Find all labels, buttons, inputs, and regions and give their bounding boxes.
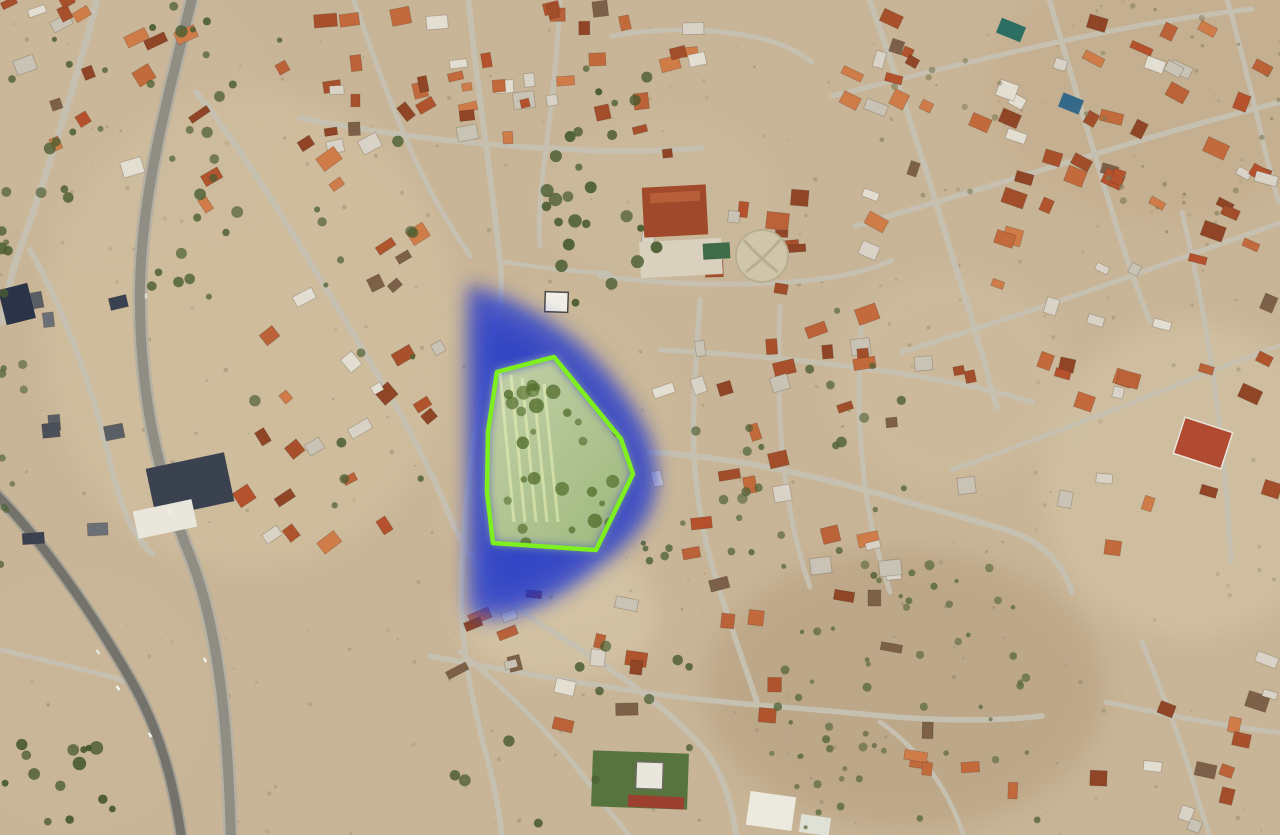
tree	[815, 809, 821, 815]
building	[774, 283, 788, 295]
tree	[754, 484, 762, 492]
tree	[503, 735, 514, 746]
tree	[804, 825, 808, 829]
tree	[1190, 35, 1193, 38]
tree	[781, 564, 786, 569]
tree	[880, 137, 885, 142]
tree	[839, 776, 844, 781]
tree	[102, 67, 108, 73]
tree	[1084, 111, 1089, 116]
tree	[925, 74, 931, 80]
tree	[583, 65, 590, 72]
tree	[1259, 135, 1264, 140]
building	[868, 590, 881, 606]
tree	[992, 756, 999, 763]
building	[449, 59, 467, 69]
tree	[16, 739, 27, 750]
tree	[788, 720, 793, 725]
tree	[1214, 211, 1219, 216]
tree	[834, 308, 840, 314]
tree	[637, 225, 644, 232]
tree	[1105, 175, 1111, 181]
tree	[28, 768, 40, 780]
tree	[203, 51, 210, 58]
tree	[599, 500, 605, 506]
tree	[98, 795, 107, 804]
building	[324, 127, 338, 136]
tree	[517, 386, 531, 400]
tree	[184, 274, 195, 285]
tree	[1119, 184, 1125, 190]
building	[765, 211, 789, 230]
tree	[569, 526, 576, 533]
building	[350, 55, 363, 72]
tree	[1022, 673, 1031, 682]
tree	[966, 633, 971, 638]
building	[809, 556, 832, 575]
tree	[214, 91, 225, 102]
tree	[641, 72, 652, 83]
tree	[314, 207, 320, 213]
tree	[813, 627, 821, 635]
tree	[1, 187, 11, 197]
tree	[611, 100, 618, 107]
tree	[517, 524, 527, 534]
building	[1112, 386, 1125, 399]
tree	[209, 174, 217, 182]
tree	[8, 75, 16, 83]
tree	[826, 381, 835, 390]
building	[459, 109, 475, 121]
building	[579, 21, 590, 35]
tree	[65, 815, 74, 824]
tree	[916, 651, 924, 659]
tree	[69, 129, 76, 136]
tree	[994, 596, 1002, 604]
building	[520, 98, 531, 108]
tree	[582, 219, 591, 228]
building	[768, 677, 782, 692]
tree	[1201, 44, 1205, 48]
building	[886, 417, 898, 428]
tree	[572, 299, 580, 307]
tree	[920, 703, 928, 711]
building	[1057, 490, 1073, 509]
tree	[22, 750, 32, 760]
tree	[546, 385, 561, 400]
building	[662, 148, 673, 158]
tree	[86, 745, 92, 751]
landmark-building	[703, 242, 731, 259]
tree	[563, 409, 571, 417]
tree	[52, 37, 57, 42]
building	[772, 484, 792, 503]
tree	[967, 189, 973, 195]
tree	[646, 557, 654, 565]
tree	[63, 192, 74, 203]
building	[590, 649, 606, 667]
building	[961, 761, 980, 772]
building	[42, 312, 55, 328]
building	[492, 79, 506, 92]
tree	[44, 818, 52, 826]
tree	[575, 662, 585, 672]
building	[758, 708, 776, 724]
tree	[3, 246, 13, 256]
tree	[691, 426, 701, 436]
tree	[1101, 51, 1105, 55]
tree	[323, 282, 328, 287]
tree	[520, 476, 527, 483]
tree	[800, 630, 804, 634]
tree	[67, 744, 79, 756]
tree	[719, 495, 729, 505]
tree	[516, 406, 526, 416]
tree	[629, 95, 640, 106]
tree	[201, 127, 212, 138]
tree	[813, 780, 821, 788]
tree	[810, 680, 815, 685]
tree	[2, 780, 9, 787]
building	[314, 13, 338, 28]
tree	[1183, 192, 1187, 196]
tree	[908, 569, 915, 576]
tree	[66, 61, 73, 68]
tree	[575, 418, 582, 425]
tree	[73, 757, 86, 770]
tree	[641, 541, 646, 546]
tree	[55, 781, 65, 791]
tree	[337, 256, 344, 263]
tree	[450, 770, 461, 781]
tree	[555, 482, 569, 496]
satellite-map-view[interactable]	[0, 0, 1280, 835]
tree	[992, 114, 999, 121]
tree	[222, 229, 229, 236]
tree	[1011, 605, 1016, 610]
tree	[1270, 117, 1274, 121]
tree	[777, 531, 785, 539]
tree	[826, 745, 834, 753]
tree	[36, 187, 47, 198]
tree	[758, 444, 764, 450]
building	[329, 85, 344, 95]
park-circle	[736, 230, 788, 282]
tree	[897, 396, 906, 405]
tree	[9, 481, 15, 487]
building	[556, 76, 574, 87]
tree	[203, 17, 211, 25]
building	[690, 516, 712, 530]
building	[42, 422, 61, 438]
tree	[1153, 8, 1156, 11]
tree	[587, 487, 597, 497]
tree	[1018, 679, 1024, 685]
building	[1096, 473, 1113, 484]
tree	[831, 626, 835, 630]
tree	[517, 437, 530, 450]
aerial-imagery[interactable]	[0, 0, 1280, 835]
building	[592, 0, 609, 17]
tree	[865, 657, 870, 662]
tree	[405, 226, 416, 237]
tree	[534, 819, 543, 828]
building	[546, 94, 558, 106]
tree	[869, 363, 876, 370]
tree	[863, 731, 869, 737]
building	[728, 210, 741, 223]
tree	[606, 475, 619, 488]
building	[1104, 539, 1122, 556]
tree	[418, 475, 424, 481]
tree	[898, 594, 902, 598]
tree	[109, 806, 116, 813]
tree	[866, 662, 871, 667]
tree	[554, 218, 563, 227]
tree	[229, 80, 237, 88]
tree	[832, 442, 840, 450]
building	[594, 104, 611, 121]
tree	[336, 438, 346, 448]
building	[390, 6, 412, 26]
tree	[579, 437, 588, 446]
tree	[194, 188, 206, 200]
tree	[920, 193, 925, 198]
tree	[332, 502, 338, 508]
landmark-building	[636, 762, 664, 790]
tree	[822, 735, 830, 743]
tree	[997, 80, 1002, 85]
tree	[946, 600, 953, 607]
tree	[3, 239, 9, 245]
tree	[859, 743, 868, 752]
landmark-building	[746, 791, 796, 831]
tree	[954, 579, 958, 583]
tree	[1165, 230, 1168, 233]
building	[481, 52, 493, 68]
tree	[209, 154, 219, 164]
building	[766, 339, 778, 355]
tree	[985, 564, 994, 573]
building	[503, 131, 514, 144]
tree	[929, 67, 936, 74]
tree	[504, 496, 512, 504]
tree	[672, 655, 683, 666]
tree	[530, 429, 536, 435]
building	[462, 82, 473, 91]
tree	[873, 507, 879, 513]
tree	[193, 214, 201, 222]
tree	[410, 354, 415, 359]
tree	[1025, 750, 1030, 755]
tree	[930, 583, 937, 590]
tree	[748, 549, 754, 555]
tree	[231, 206, 243, 218]
building	[1090, 770, 1107, 786]
building	[103, 423, 125, 441]
tree	[606, 278, 618, 290]
tree	[563, 191, 574, 202]
tree	[459, 774, 471, 786]
tree	[60, 185, 68, 193]
tree	[18, 360, 27, 369]
tree	[169, 2, 178, 11]
tree	[595, 88, 602, 95]
tree	[842, 766, 847, 771]
tree	[651, 241, 663, 253]
tree	[155, 268, 163, 276]
tree	[595, 687, 604, 696]
building	[1143, 760, 1162, 772]
tree	[859, 413, 869, 423]
tree	[392, 136, 403, 147]
tree	[781, 665, 790, 674]
building	[630, 660, 644, 675]
building	[953, 365, 965, 376]
tree	[870, 572, 877, 579]
tree	[836, 547, 843, 554]
tree	[891, 83, 898, 90]
building	[682, 22, 704, 34]
tree	[1120, 197, 1127, 204]
tree	[644, 694, 654, 704]
tree	[876, 577, 882, 583]
building	[1227, 716, 1241, 733]
building	[790, 189, 809, 206]
tree	[277, 37, 282, 42]
tree	[769, 751, 774, 756]
tree	[565, 131, 576, 142]
tree	[528, 472, 541, 485]
tree	[568, 214, 581, 227]
tree	[1162, 182, 1167, 187]
tree	[20, 386, 28, 394]
tree	[988, 717, 992, 721]
tree	[186, 126, 194, 134]
tree	[506, 397, 519, 410]
tree	[529, 398, 544, 413]
tree	[685, 663, 693, 671]
building	[922, 722, 933, 739]
tree	[924, 560, 934, 570]
tree	[680, 520, 686, 526]
tree	[340, 474, 350, 484]
tree	[686, 744, 693, 751]
tree	[861, 561, 870, 570]
tree	[1233, 187, 1239, 193]
tree	[901, 485, 907, 491]
tree	[1102, 116, 1107, 121]
building	[914, 356, 933, 372]
tree	[1122, 175, 1125, 178]
tree	[1034, 817, 1041, 824]
building	[964, 370, 976, 384]
tree	[856, 775, 863, 782]
tree	[805, 365, 814, 374]
building	[720, 613, 735, 629]
tree	[1237, 43, 1240, 46]
tree	[795, 694, 803, 702]
building	[426, 15, 448, 30]
tree	[943, 750, 949, 756]
tree	[736, 515, 742, 521]
tree	[1265, 74, 1268, 77]
tree	[798, 753, 803, 758]
tree	[147, 80, 155, 88]
vehicle	[145, 293, 148, 298]
tree	[963, 58, 968, 63]
tree	[620, 210, 632, 222]
building	[339, 12, 360, 27]
tree	[206, 294, 212, 300]
tree	[607, 130, 617, 140]
tree	[541, 184, 554, 197]
tree	[317, 217, 326, 226]
tree	[643, 546, 649, 552]
building	[523, 73, 535, 87]
tree	[175, 25, 187, 37]
landmark-building	[545, 292, 569, 313]
tree	[962, 104, 968, 110]
tree	[881, 748, 887, 754]
building	[616, 703, 639, 716]
tree	[905, 597, 912, 604]
tree	[44, 142, 56, 154]
building	[695, 340, 706, 357]
tree	[1156, 206, 1159, 209]
building	[348, 122, 360, 136]
building	[957, 476, 977, 495]
building	[589, 53, 606, 67]
tree	[0, 504, 7, 511]
tree	[588, 514, 602, 528]
tree	[173, 277, 184, 288]
tree	[550, 150, 562, 162]
tree	[872, 743, 877, 748]
tree	[591, 775, 600, 784]
tree	[978, 705, 982, 709]
tree	[903, 604, 910, 611]
tree	[176, 248, 187, 259]
tree	[357, 349, 366, 358]
tree	[660, 552, 669, 561]
building	[789, 244, 806, 253]
building	[878, 559, 902, 577]
building	[822, 345, 834, 360]
tree	[1182, 201, 1186, 205]
tree	[728, 548, 736, 556]
building	[748, 609, 765, 626]
tree	[190, 27, 196, 33]
tree	[169, 155, 175, 161]
tree	[149, 24, 156, 31]
tree	[1009, 652, 1017, 660]
tree	[825, 723, 833, 731]
building	[1008, 782, 1018, 799]
tree	[249, 395, 260, 406]
building	[87, 523, 108, 536]
building	[22, 532, 45, 545]
tree	[794, 784, 799, 789]
tree	[1141, 165, 1144, 168]
building	[921, 762, 932, 776]
tree	[665, 544, 673, 552]
tree	[774, 702, 783, 711]
tree	[1199, 15, 1205, 21]
tree	[743, 447, 752, 456]
tree	[631, 255, 644, 268]
tree	[917, 815, 924, 822]
